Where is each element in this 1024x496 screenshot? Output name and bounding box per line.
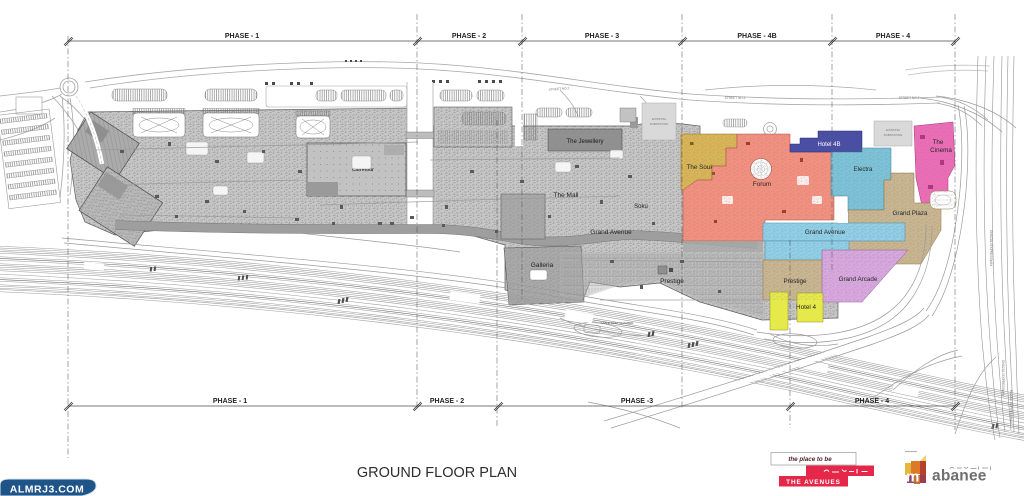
svg-text:Grand Avenue: Grand Avenue [590, 229, 632, 236]
svg-text:Hotel 4B: Hotel 4B [817, 142, 840, 148]
svg-text:EXISTING: EXISTING [652, 117, 667, 121]
svg-text:SUBSTATION: SUBSTATION [884, 133, 903, 137]
svg-text:Hotel 4: Hotel 4 [796, 304, 816, 311]
svg-text:The Mall: The Mall [554, 192, 579, 199]
svg-text:PHASE - 4: PHASE - 4 [876, 33, 910, 40]
svg-text:Prestige: Prestige [660, 278, 684, 285]
svg-text:PHASE -3: PHASE -3 [621, 398, 653, 405]
svg-text:PHASE - 1: PHASE - 1 [225, 33, 259, 40]
svg-text:PHASE - 2: PHASE - 2 [430, 398, 464, 405]
svg-text:PHASE - 4B: PHASE - 4B [737, 33, 776, 40]
svg-text:STREET NO.2: STREET NO.2 [899, 96, 920, 100]
svg-text:PHASE - 4: PHASE - 4 [855, 398, 889, 405]
svg-text:Galleria: Galleria [531, 262, 554, 269]
svg-text:the place to be: the place to be [788, 456, 832, 463]
svg-text:ALMRJ3.COM: ALMRJ3.COM [10, 484, 84, 496]
svg-text:PHASE - 2: PHASE - 2 [452, 33, 486, 40]
svg-text:EXISTING: EXISTING [886, 128, 901, 132]
svg-text:PHASE - 3: PHASE - 3 [585, 33, 619, 40]
svg-text:m: m [906, 469, 919, 486]
svg-text:SUBSTATION: SUBSTATION [650, 122, 669, 126]
svg-text:PHASE - 1: PHASE - 1 [213, 398, 247, 405]
svg-text:STREET NO.2: STREET NO.2 [725, 96, 746, 100]
svg-text:THE AVENUES: THE AVENUES [786, 479, 841, 486]
svg-text:GROUND FLOOR PLAN: GROUND FLOOR PLAN [357, 465, 517, 481]
svg-text:GHAZALI EXPRESSWAY: GHAZALI EXPRESSWAY [1001, 360, 1005, 397]
svg-text:CABLE JOINT CHAMBER: CABLE JOINT CHAMBER [601, 321, 634, 325]
svg-text:GHAZALI EXPRESSWAY: GHAZALI EXPRESSWAY [989, 230, 993, 267]
svg-text:abanee: abanee [932, 468, 987, 485]
svg-text:HAZALI EXPRESSWAY: HAZALI EXPRESSWAY [1009, 390, 1013, 425]
svg-text:The Jewellery: The Jewellery [566, 139, 603, 145]
svg-text:Soku: Soku [634, 204, 648, 210]
